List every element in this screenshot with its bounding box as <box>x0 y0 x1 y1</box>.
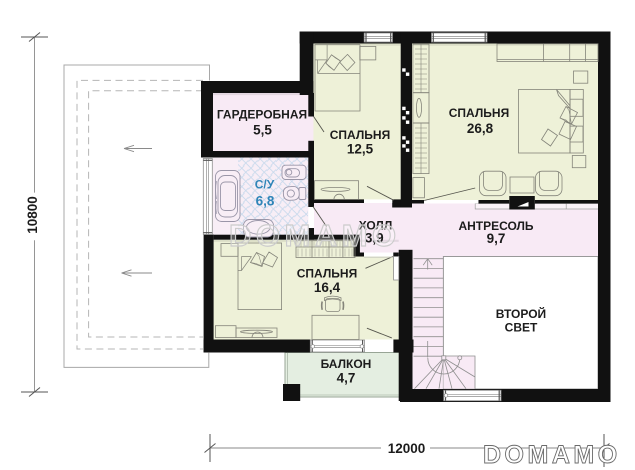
svg-text:С/У: С/У <box>255 178 275 192</box>
svg-text:9,7: 9,7 <box>487 231 506 246</box>
svg-text:26,8: 26,8 <box>467 121 494 136</box>
svg-text:СВЕТ: СВЕТ <box>505 321 538 335</box>
svg-text:12,5: 12,5 <box>347 142 374 157</box>
svg-text:16,4: 16,4 <box>314 280 341 295</box>
svg-text:6,8: 6,8 <box>256 193 275 208</box>
svg-text:5,5: 5,5 <box>253 122 272 137</box>
svg-text:СПАЛЬНЯ: СПАЛЬНЯ <box>297 266 357 280</box>
svg-text:10800: 10800 <box>25 196 40 234</box>
svg-text:DOMAMO: DOMAMO <box>483 441 621 469</box>
svg-text:БАЛКОН: БАЛКОН <box>321 357 372 371</box>
svg-text:DOMAMO: DOMAMO <box>229 218 401 253</box>
svg-text:СПАЛЬНЯ: СПАЛЬНЯ <box>330 128 390 142</box>
svg-text:ГАРДЕРОБНАЯ: ГАРДЕРОБНАЯ <box>217 107 307 121</box>
svg-text:СПАЛЬНЯ: СПАЛЬНЯ <box>449 106 509 120</box>
svg-text:12000: 12000 <box>388 441 426 456</box>
svg-text:ВТОРОЙ: ВТОРОЙ <box>496 306 546 321</box>
svg-text:4,7: 4,7 <box>337 370 356 385</box>
